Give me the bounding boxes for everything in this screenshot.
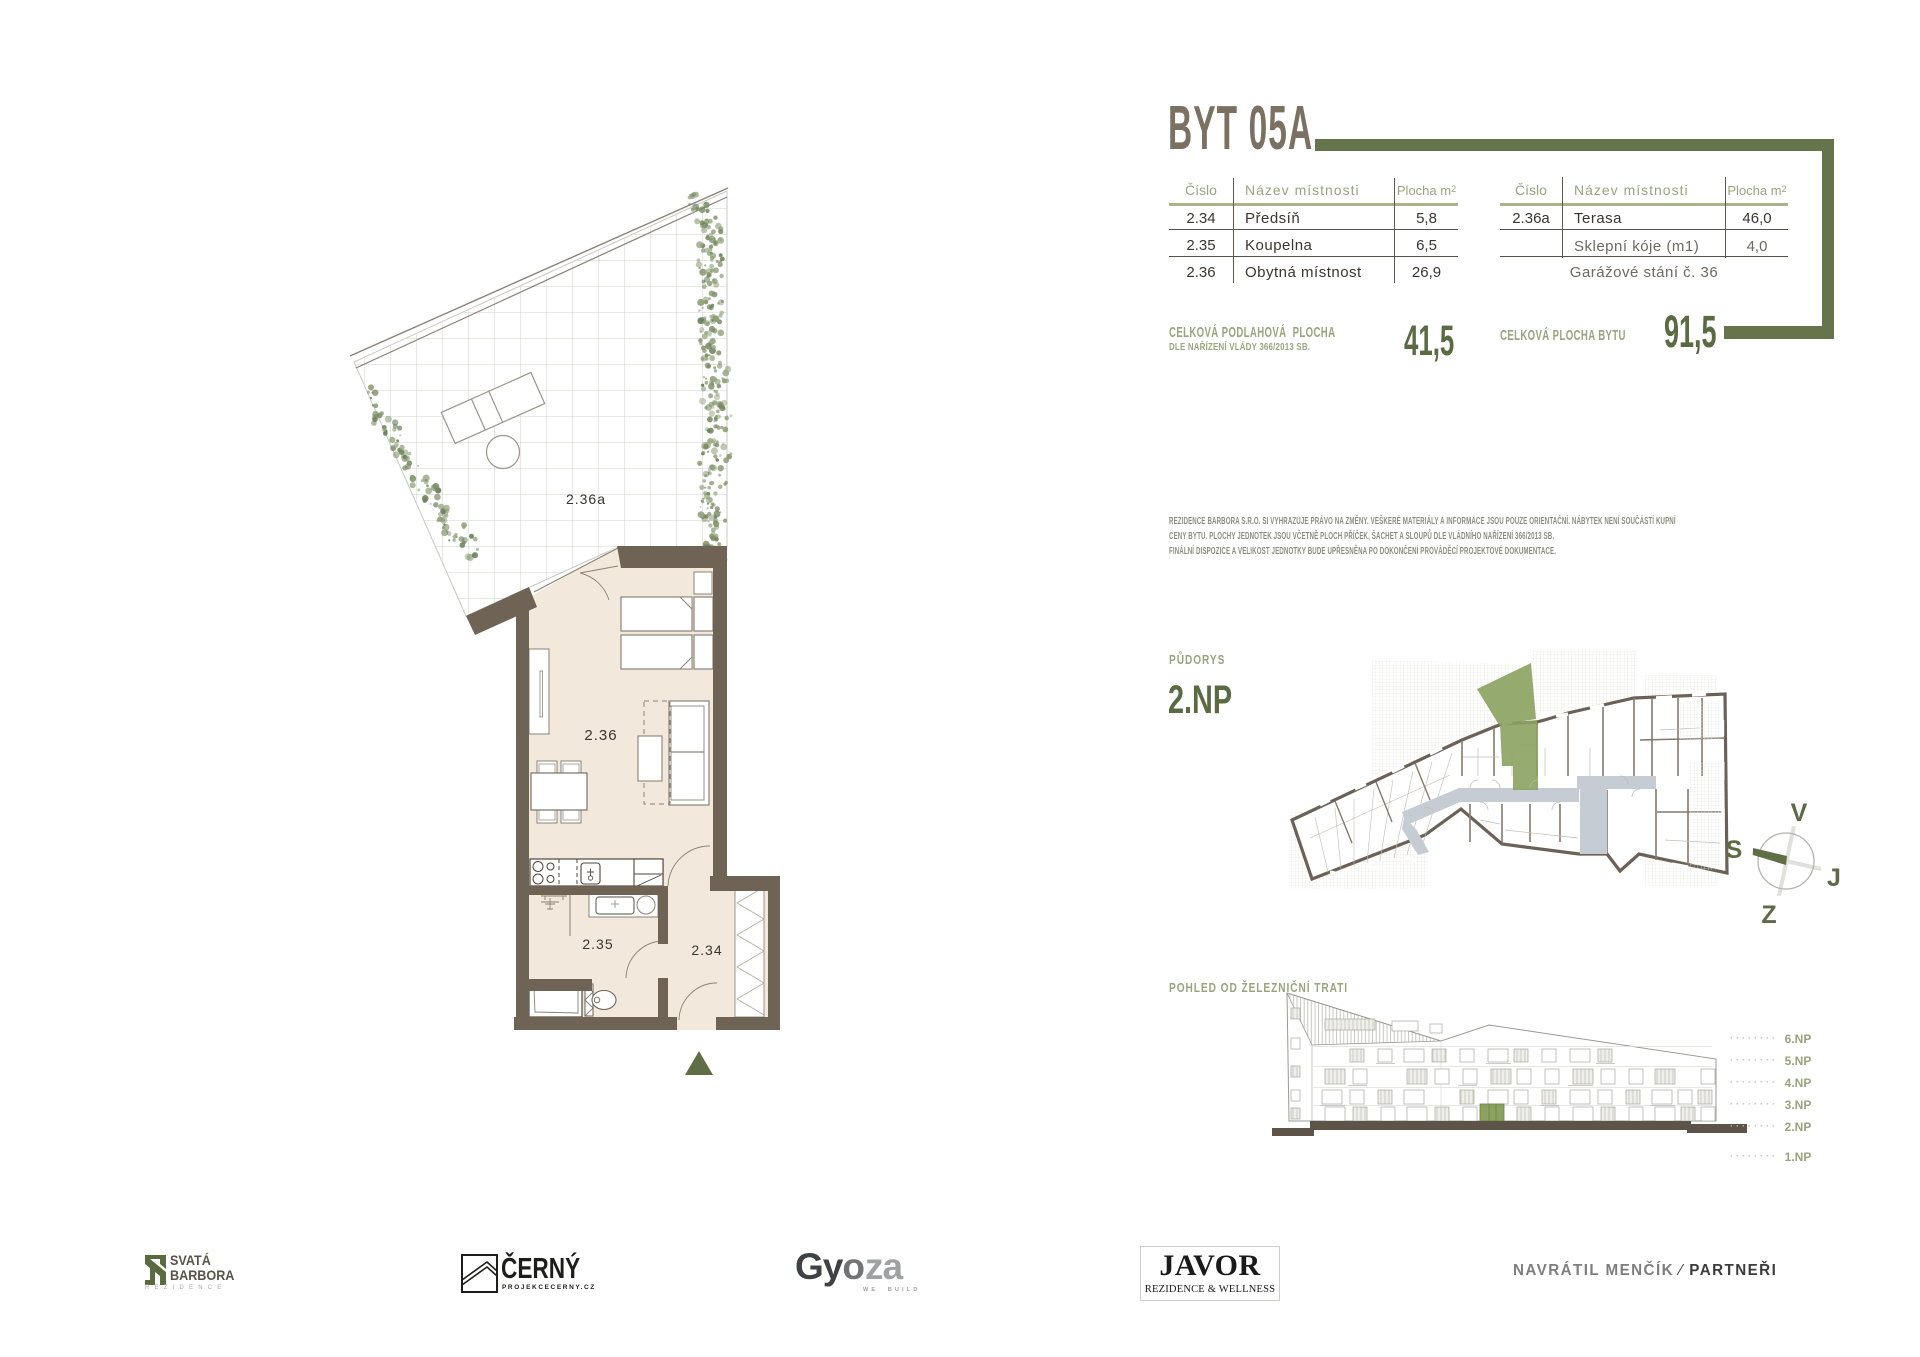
svg-text:2.35: 2.35 [582,936,613,952]
svg-text:2.36a: 2.36a [566,491,606,507]
svg-text:J: J [1827,864,1841,892]
svg-text:V: V [1791,799,1808,827]
svg-text:2.36: 2.36 [584,727,617,744]
svg-text:S: S [1726,836,1743,864]
svg-text:2.34: 2.34 [691,942,722,958]
svg-text:Z: Z [1761,901,1776,929]
